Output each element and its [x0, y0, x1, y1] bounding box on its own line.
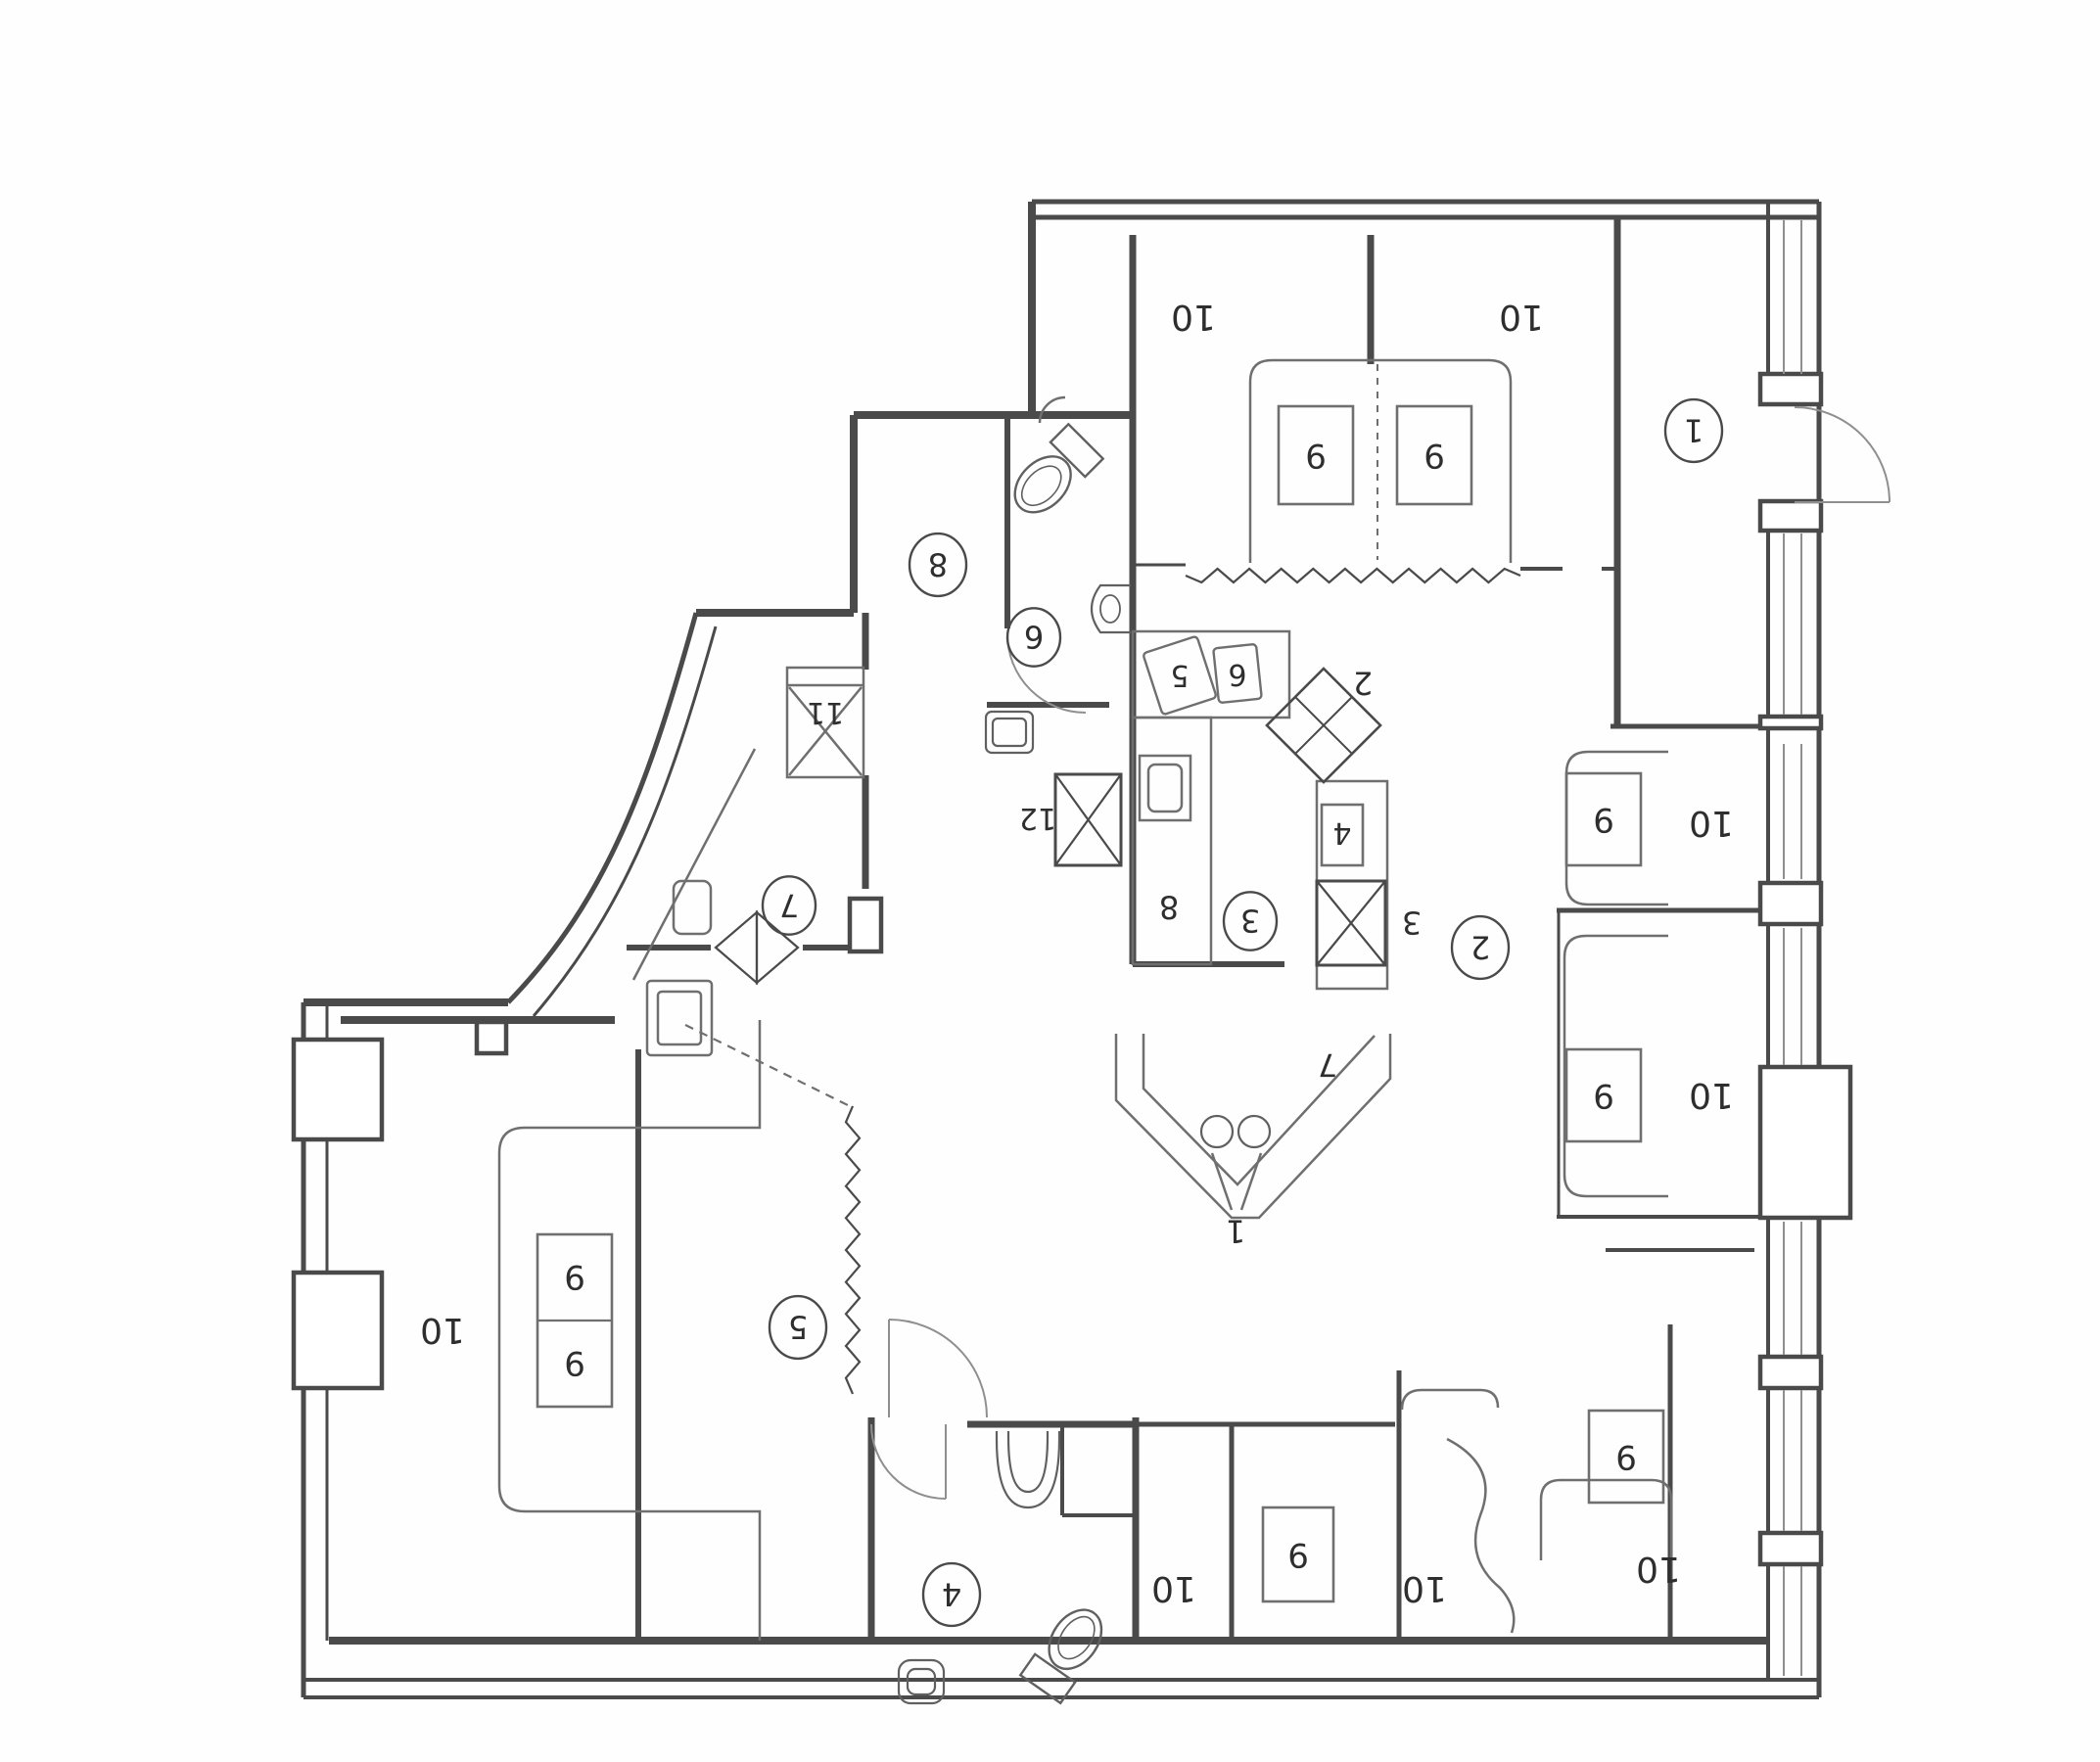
furniture-outline [1040, 397, 1065, 423]
window-pillar [850, 899, 881, 951]
bar-sink-circle [1238, 1116, 1270, 1147]
sink-fixture [1008, 1431, 1048, 1492]
item-number-label: 6 [1228, 657, 1246, 691]
item-number-label: 9 [1593, 800, 1614, 839]
furniture-outline [1541, 1480, 1671, 1560]
room-number-label: 2 [1470, 928, 1490, 965]
window-pillar [1760, 1533, 1821, 1564]
window-pillar [477, 1022, 506, 1053]
item-number-label: 9 [1287, 1535, 1309, 1574]
window-pillar [1760, 883, 1821, 924]
item-number-label: 8 [1159, 888, 1179, 925]
room-number-label: 5 [788, 1308, 808, 1345]
item-number-label: 9 [1423, 436, 1445, 475]
window-pillar [294, 1040, 382, 1139]
furniture-outline [1116, 1034, 1390, 1218]
toilet-fixture [1020, 1599, 1113, 1702]
item-number-label: 1 [1226, 1212, 1245, 1249]
item-number-label: 10 [1636, 1549, 1681, 1589]
furniture-outline [1564, 936, 1668, 1196]
item-number-label: 9 [1305, 436, 1327, 475]
item-number-label: 11 [807, 695, 844, 729]
x-box-cross [1055, 774, 1121, 865]
item-number-label: 10 [1151, 1568, 1196, 1608]
furniture-outline [674, 881, 711, 934]
furniture-outline [1402, 1390, 1498, 1410]
room-number-label: 4 [942, 1575, 961, 1612]
furniture-outline [1317, 781, 1387, 989]
sink-fixture [997, 1431, 1059, 1507]
item-number-label: 4 [1332, 815, 1351, 850]
furniture-outline [1447, 1439, 1514, 1633]
item-number-label: 12 [1019, 801, 1056, 835]
window-pillar [1760, 501, 1821, 531]
item-number-label: 10 [420, 1310, 465, 1350]
item-number-label: 10 [1499, 297, 1544, 337]
furniture-outline [1241, 1153, 1261, 1210]
scanned-floor-plan-page: 1234567810101010101010109999999956243871… [0, 0, 2100, 1762]
item-number-label: 9 [564, 1343, 585, 1382]
item-number-label: 3 [1402, 904, 1422, 941]
door-swing-arc [871, 1424, 946, 1499]
door-swing-arc [1795, 407, 1890, 502]
window-pillar [1760, 1357, 1821, 1388]
item-number-label: 7 [1318, 1045, 1337, 1083]
double-door-leaf [716, 912, 757, 983]
furniture-outline [1566, 752, 1668, 904]
item-number-label: 5 [1170, 658, 1189, 692]
bar-sink-circle [1201, 1116, 1233, 1147]
room-number-label: 7 [779, 886, 799, 923]
wall [508, 613, 696, 1002]
room-number-label: 8 [928, 545, 948, 582]
item-number-label: 9 [1593, 1076, 1614, 1115]
dashed-partition-line [685, 1025, 850, 1106]
room-number-label: 3 [1240, 902, 1260, 939]
x-box-cross [1317, 881, 1385, 965]
item-number-label: 10 [1171, 297, 1216, 337]
window-pillar [1760, 1067, 1850, 1218]
window-pillar [1760, 374, 1821, 404]
door-swing-arc [889, 1320, 987, 1417]
window-pillar [294, 1273, 382, 1388]
room-number-label: 1 [1684, 411, 1703, 448]
zigzag-partition [1186, 569, 1520, 582]
toilet-bowl [1004, 445, 1082, 523]
toilet-bowl-inner [1014, 459, 1068, 513]
room-number-label: 6 [1024, 618, 1044, 655]
item-number-label: 10 [1689, 1075, 1734, 1115]
sink-bowl [1100, 595, 1120, 623]
door-swing-arc [1007, 634, 1086, 713]
furniture-outline [1148, 765, 1182, 811]
item-number-label: 10 [1689, 803, 1734, 843]
item-number-label: 9 [564, 1257, 585, 1296]
furniture-outline [1133, 631, 1289, 718]
item-number-label: 2 [1353, 664, 1373, 701]
item-number-label: 10 [1402, 1568, 1447, 1608]
floor-plan-drawing: 1234567810101010101010109999999956243871… [0, 0, 2100, 1762]
sink-fixture [1092, 585, 1131, 632]
sink-fixture [993, 719, 1026, 746]
window-pillar [1760, 717, 1821, 728]
toilet-fixture [1003, 424, 1103, 525]
item-number-label: 9 [1615, 1437, 1637, 1476]
zigzag-partition [846, 1106, 860, 1394]
furniture-outline [658, 992, 701, 1044]
